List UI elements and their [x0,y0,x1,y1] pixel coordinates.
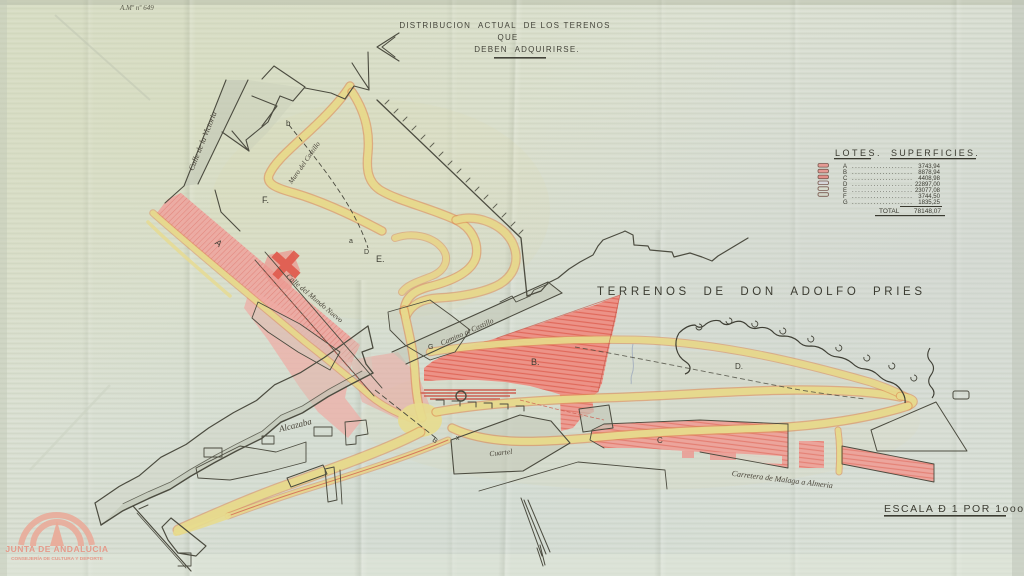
svg-text:QUE: QUE [498,33,519,42]
svg-text:DISTRIBUCION ACTUAL DE LOS T: DISTRIBUCION ACTUAL DE LOS TERENOS [399,21,610,30]
svg-text:78148,07: 78148,07 [914,208,941,215]
svg-text:LOTES.: LOTES. [835,148,882,158]
svg-text:x: x [456,435,460,442]
svg-text:ESCALA Ð 1 POR 1ooo.: ESCALA Ð 1 POR 1ooo. [884,503,1024,515]
svg-text:G: G [428,344,433,351]
svg-text:SUPERFICIES.: SUPERFICIES. [891,148,980,158]
svg-text:D: D [364,249,369,256]
svg-text:TERRENOS DE DON ADOLFO PRI: TERRENOS DE DON ADOLFO PRIES [597,286,925,298]
svg-text:E.: E. [376,254,385,264]
svg-text:b: b [286,119,291,128]
svg-text:a: a [349,238,353,245]
svg-text:DEBEN ADQUIRIRSE.: DEBEN ADQUIRIRSE. [474,45,580,54]
svg-text:A.Mº nº 649: A.Mº nº 649 [119,4,154,12]
svg-text:C: C [657,436,663,445]
svg-text:TOTAL: TOTAL [879,208,900,215]
svg-text:F.: F. [262,195,269,205]
svg-text:B.: B. [531,357,540,367]
svg-text:D.: D. [735,362,743,371]
svg-text:....................: .................... [852,200,913,206]
svg-text:JUNTA DE ANDALUCIA: JUNTA DE ANDALUCIA [5,544,108,554]
svg-text:1835,25: 1835,25 [918,200,940,206]
svg-text:G: G [843,200,848,206]
